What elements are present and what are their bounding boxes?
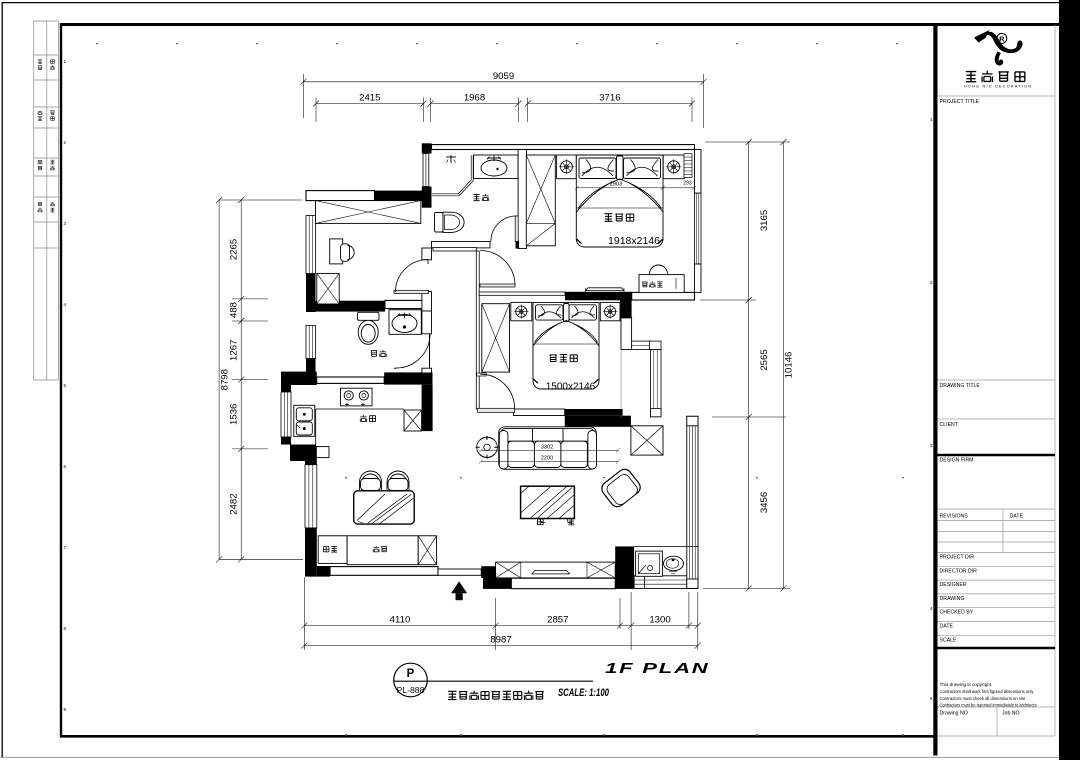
svg-text:2857: 2857	[547, 615, 568, 626]
svg-text:5: 5	[930, 696, 933, 701]
svg-text:2415: 2415	[359, 92, 380, 103]
svg-text:3716: 3716	[599, 92, 620, 103]
svg-text:PL-888: PL-888	[397, 685, 425, 695]
svg-text:1918x2146: 1918x2146	[608, 235, 660, 247]
svg-text:HONG NIU DECORATION: HONG NIU DECORATION	[964, 85, 1032, 89]
svg-text:10146: 10146	[784, 352, 795, 379]
svg-text:SCALE: 1:100: SCALE: 1:100	[558, 687, 610, 699]
svg-text:CHECKED BY: CHECKED BY	[940, 610, 974, 616]
svg-text:1536: 1536	[229, 404, 240, 425]
svg-text:8: 8	[64, 626, 67, 631]
svg-text:2: 2	[64, 140, 67, 145]
svg-text:DRAWING: DRAWING	[940, 596, 965, 602]
svg-text:9: 9	[64, 707, 67, 712]
svg-text:9059: 9059	[493, 71, 514, 82]
svg-text:8798: 8798	[220, 369, 231, 390]
svg-text:Contractors must check all dim: Contractors must check all dimensions on…	[940, 696, 1026, 701]
svg-text:3: 3	[930, 443, 933, 448]
svg-text:3: 3	[64, 221, 67, 226]
svg-text:1: 1	[64, 59, 67, 64]
svg-text:DESIGNER: DESIGNER	[940, 582, 967, 588]
svg-text:488: 488	[229, 302, 240, 318]
svg-text:4: 4	[64, 302, 67, 307]
svg-text:PROJECT DIR: PROJECT DIR	[940, 555, 975, 561]
svg-text:DESIGN FIRM: DESIGN FIRM	[940, 458, 974, 464]
svg-text:Job NO: Job NO	[1002, 711, 1020, 717]
svg-text:1300: 1300	[649, 615, 670, 626]
svg-text:Contractors shall work firm fi: Contractors shall work firm figured dime…	[940, 689, 1035, 694]
svg-text:2200: 2200	[541, 456, 553, 462]
svg-text:Drawing NO: Drawing NO	[940, 711, 968, 717]
svg-text:This drawing is copyright.: This drawing is copyright.	[940, 682, 993, 687]
svg-text:REVISIONS: REVISIONS	[940, 514, 969, 520]
svg-text:7: 7	[64, 545, 67, 550]
svg-text:1500x2146: 1500x2146	[546, 382, 596, 393]
svg-text:6: 6	[64, 464, 67, 469]
svg-text:2482: 2482	[229, 493, 240, 514]
svg-text:3456: 3456	[759, 492, 770, 513]
svg-text:R: R	[999, 34, 1005, 43]
svg-text:1: 1	[930, 117, 933, 122]
svg-text:DRAWING TITLE: DRAWING TITLE	[940, 383, 981, 389]
svg-text:2903: 2903	[610, 182, 622, 188]
svg-text:293: 293	[683, 181, 692, 187]
svg-text:DATE: DATE	[940, 624, 954, 630]
svg-text:4110: 4110	[390, 615, 411, 626]
svg-text:DATE: DATE	[1010, 514, 1024, 520]
svg-text:5: 5	[64, 383, 67, 388]
svg-text:CLIENT: CLIENT	[940, 422, 959, 428]
svg-text:1F PLAN: 1F PLAN	[605, 660, 710, 676]
svg-text:4: 4	[930, 606, 933, 611]
svg-text:2265: 2265	[229, 239, 240, 260]
svg-text:3302: 3302	[541, 445, 553, 451]
svg-text:SCALE: SCALE	[940, 637, 958, 643]
svg-text:PROJECT TITLE: PROJECT TITLE	[940, 99, 980, 105]
svg-text:P: P	[407, 668, 415, 680]
svg-text:3165: 3165	[759, 210, 770, 231]
svg-text:2: 2	[930, 280, 933, 285]
svg-text:8987: 8987	[490, 634, 511, 645]
svg-text:2565: 2565	[759, 349, 770, 370]
svg-text:Contractors must be reported i: Contractors must be reported immediately…	[940, 703, 1038, 708]
svg-text:1267: 1267	[229, 340, 240, 361]
svg-text:1968: 1968	[464, 92, 485, 103]
svg-text:DIRECTOR DIR: DIRECTOR DIR	[940, 568, 978, 574]
